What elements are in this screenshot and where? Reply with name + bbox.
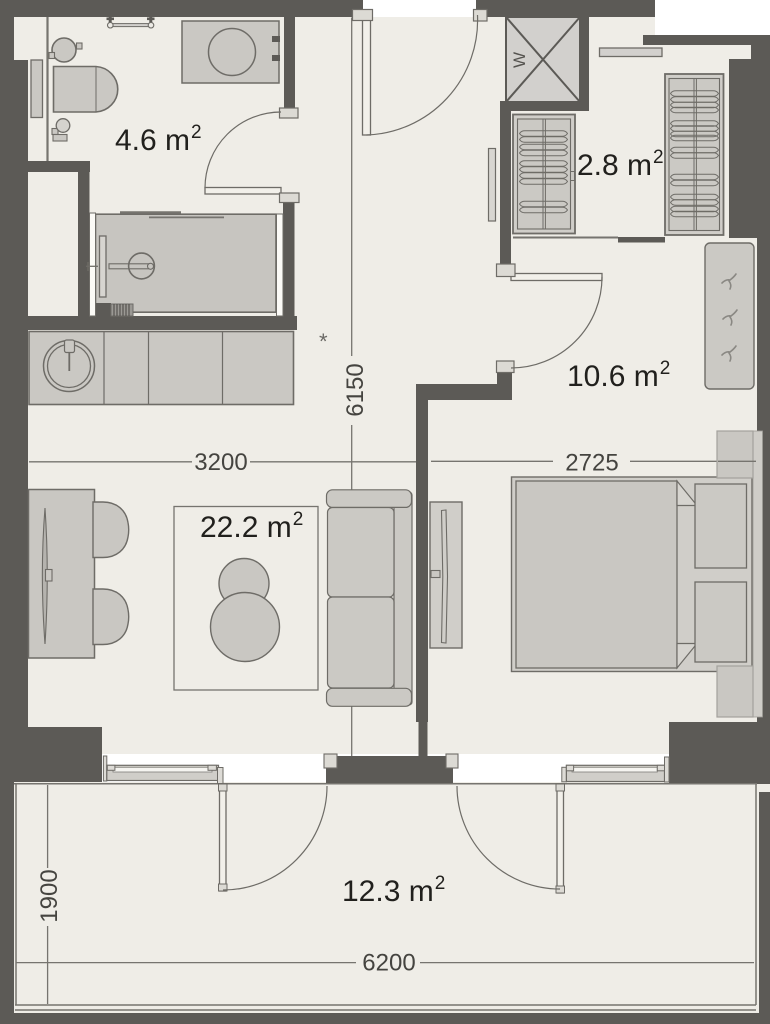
- svg-text:*: *: [319, 329, 328, 354]
- svg-text:2: 2: [435, 873, 446, 894]
- svg-text:2: 2: [660, 358, 671, 379]
- svg-text:W: W: [510, 52, 529, 68]
- svg-text:22.2 m: 22.2 m: [200, 511, 292, 544]
- svg-text:12.3 m: 12.3 m: [342, 875, 434, 908]
- svg-text:4.6 m: 4.6 m: [115, 124, 190, 157]
- svg-text:6200: 6200: [362, 950, 415, 977]
- svg-text:2: 2: [293, 509, 304, 530]
- svg-text:6150: 6150: [342, 363, 369, 416]
- svg-text:3200: 3200: [194, 449, 247, 476]
- svg-text:2725: 2725: [565, 450, 618, 477]
- svg-text:2: 2: [191, 122, 202, 143]
- svg-text:1900: 1900: [36, 869, 63, 922]
- svg-text:10.6 m: 10.6 m: [567, 360, 659, 393]
- svg-text:2.8 m: 2.8 m: [577, 149, 652, 182]
- svg-text:2: 2: [653, 147, 664, 168]
